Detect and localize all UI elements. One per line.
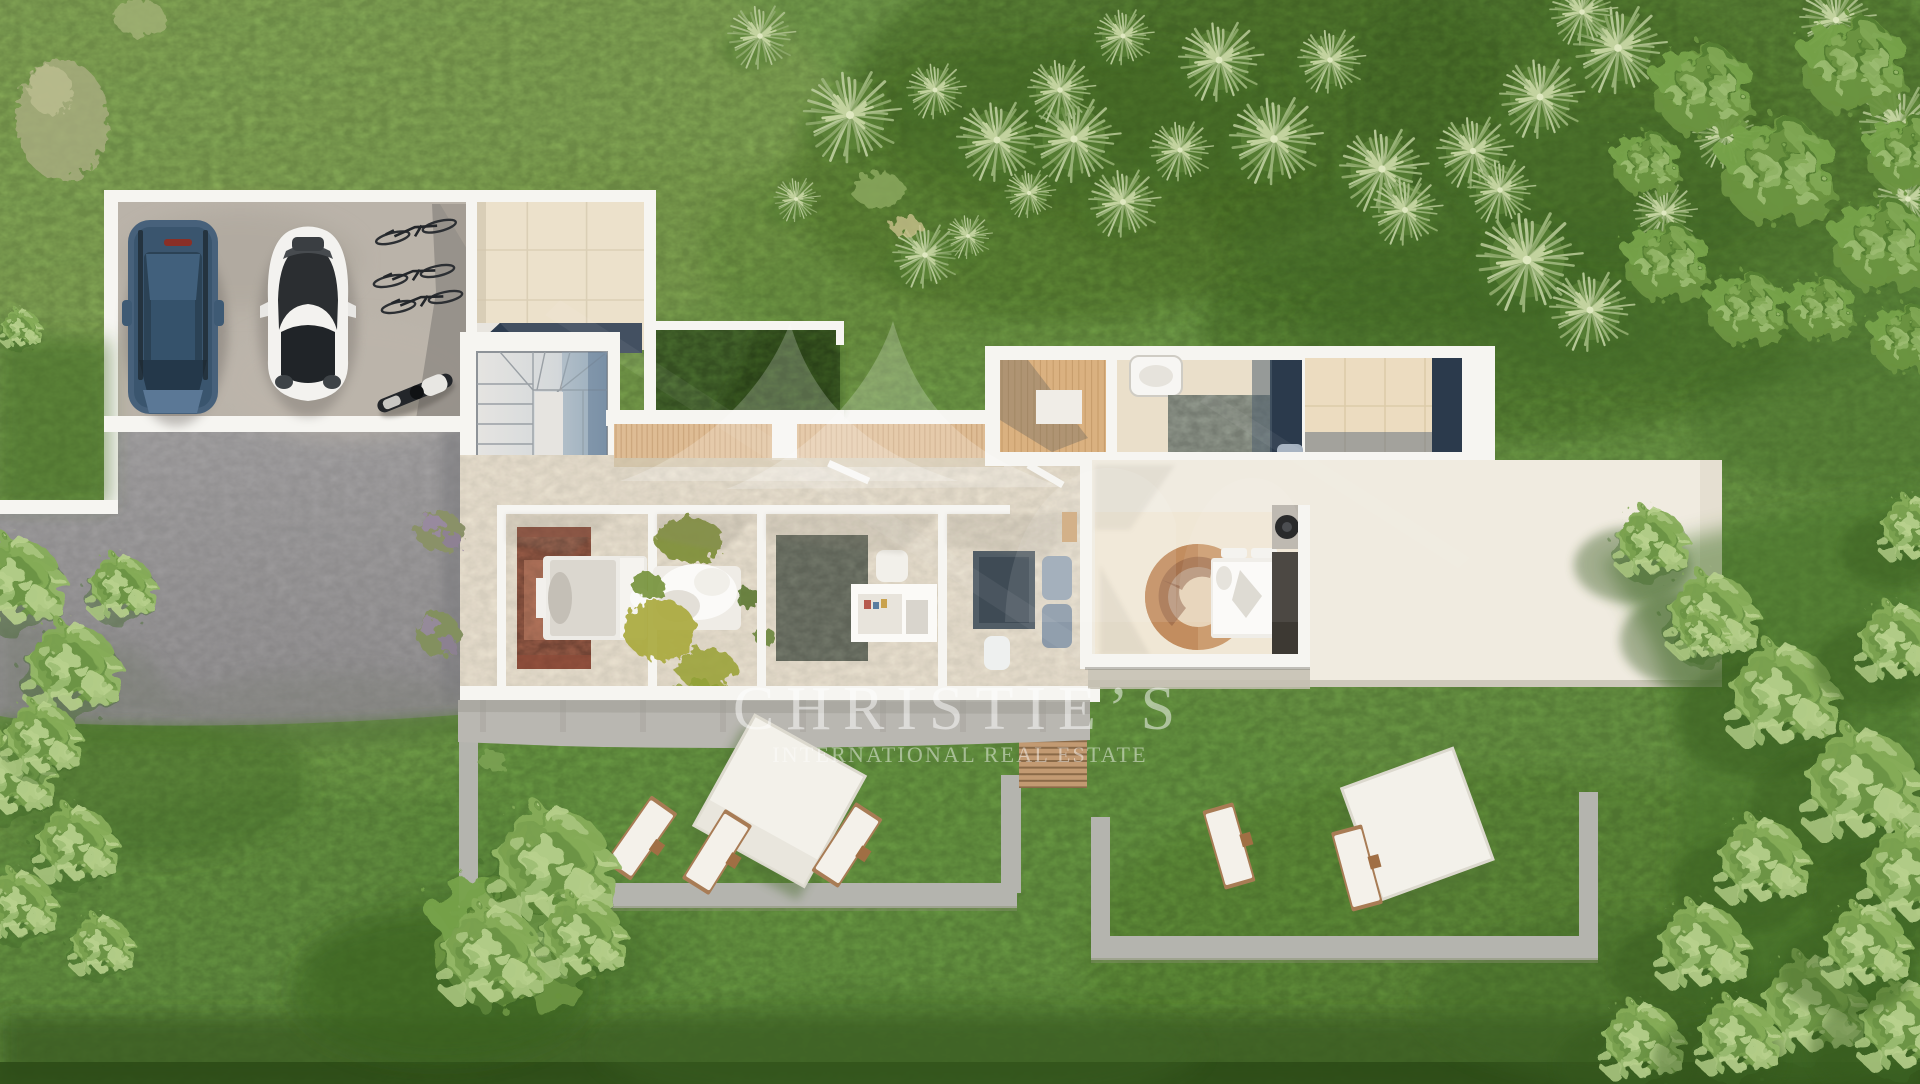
- svg-text:CHRISTIE’S: CHRISTIE’S: [733, 675, 1187, 743]
- svg-text:INTERNATIONAL REAL ESTATE: INTERNATIONAL REAL ESTATE: [772, 742, 1147, 767]
